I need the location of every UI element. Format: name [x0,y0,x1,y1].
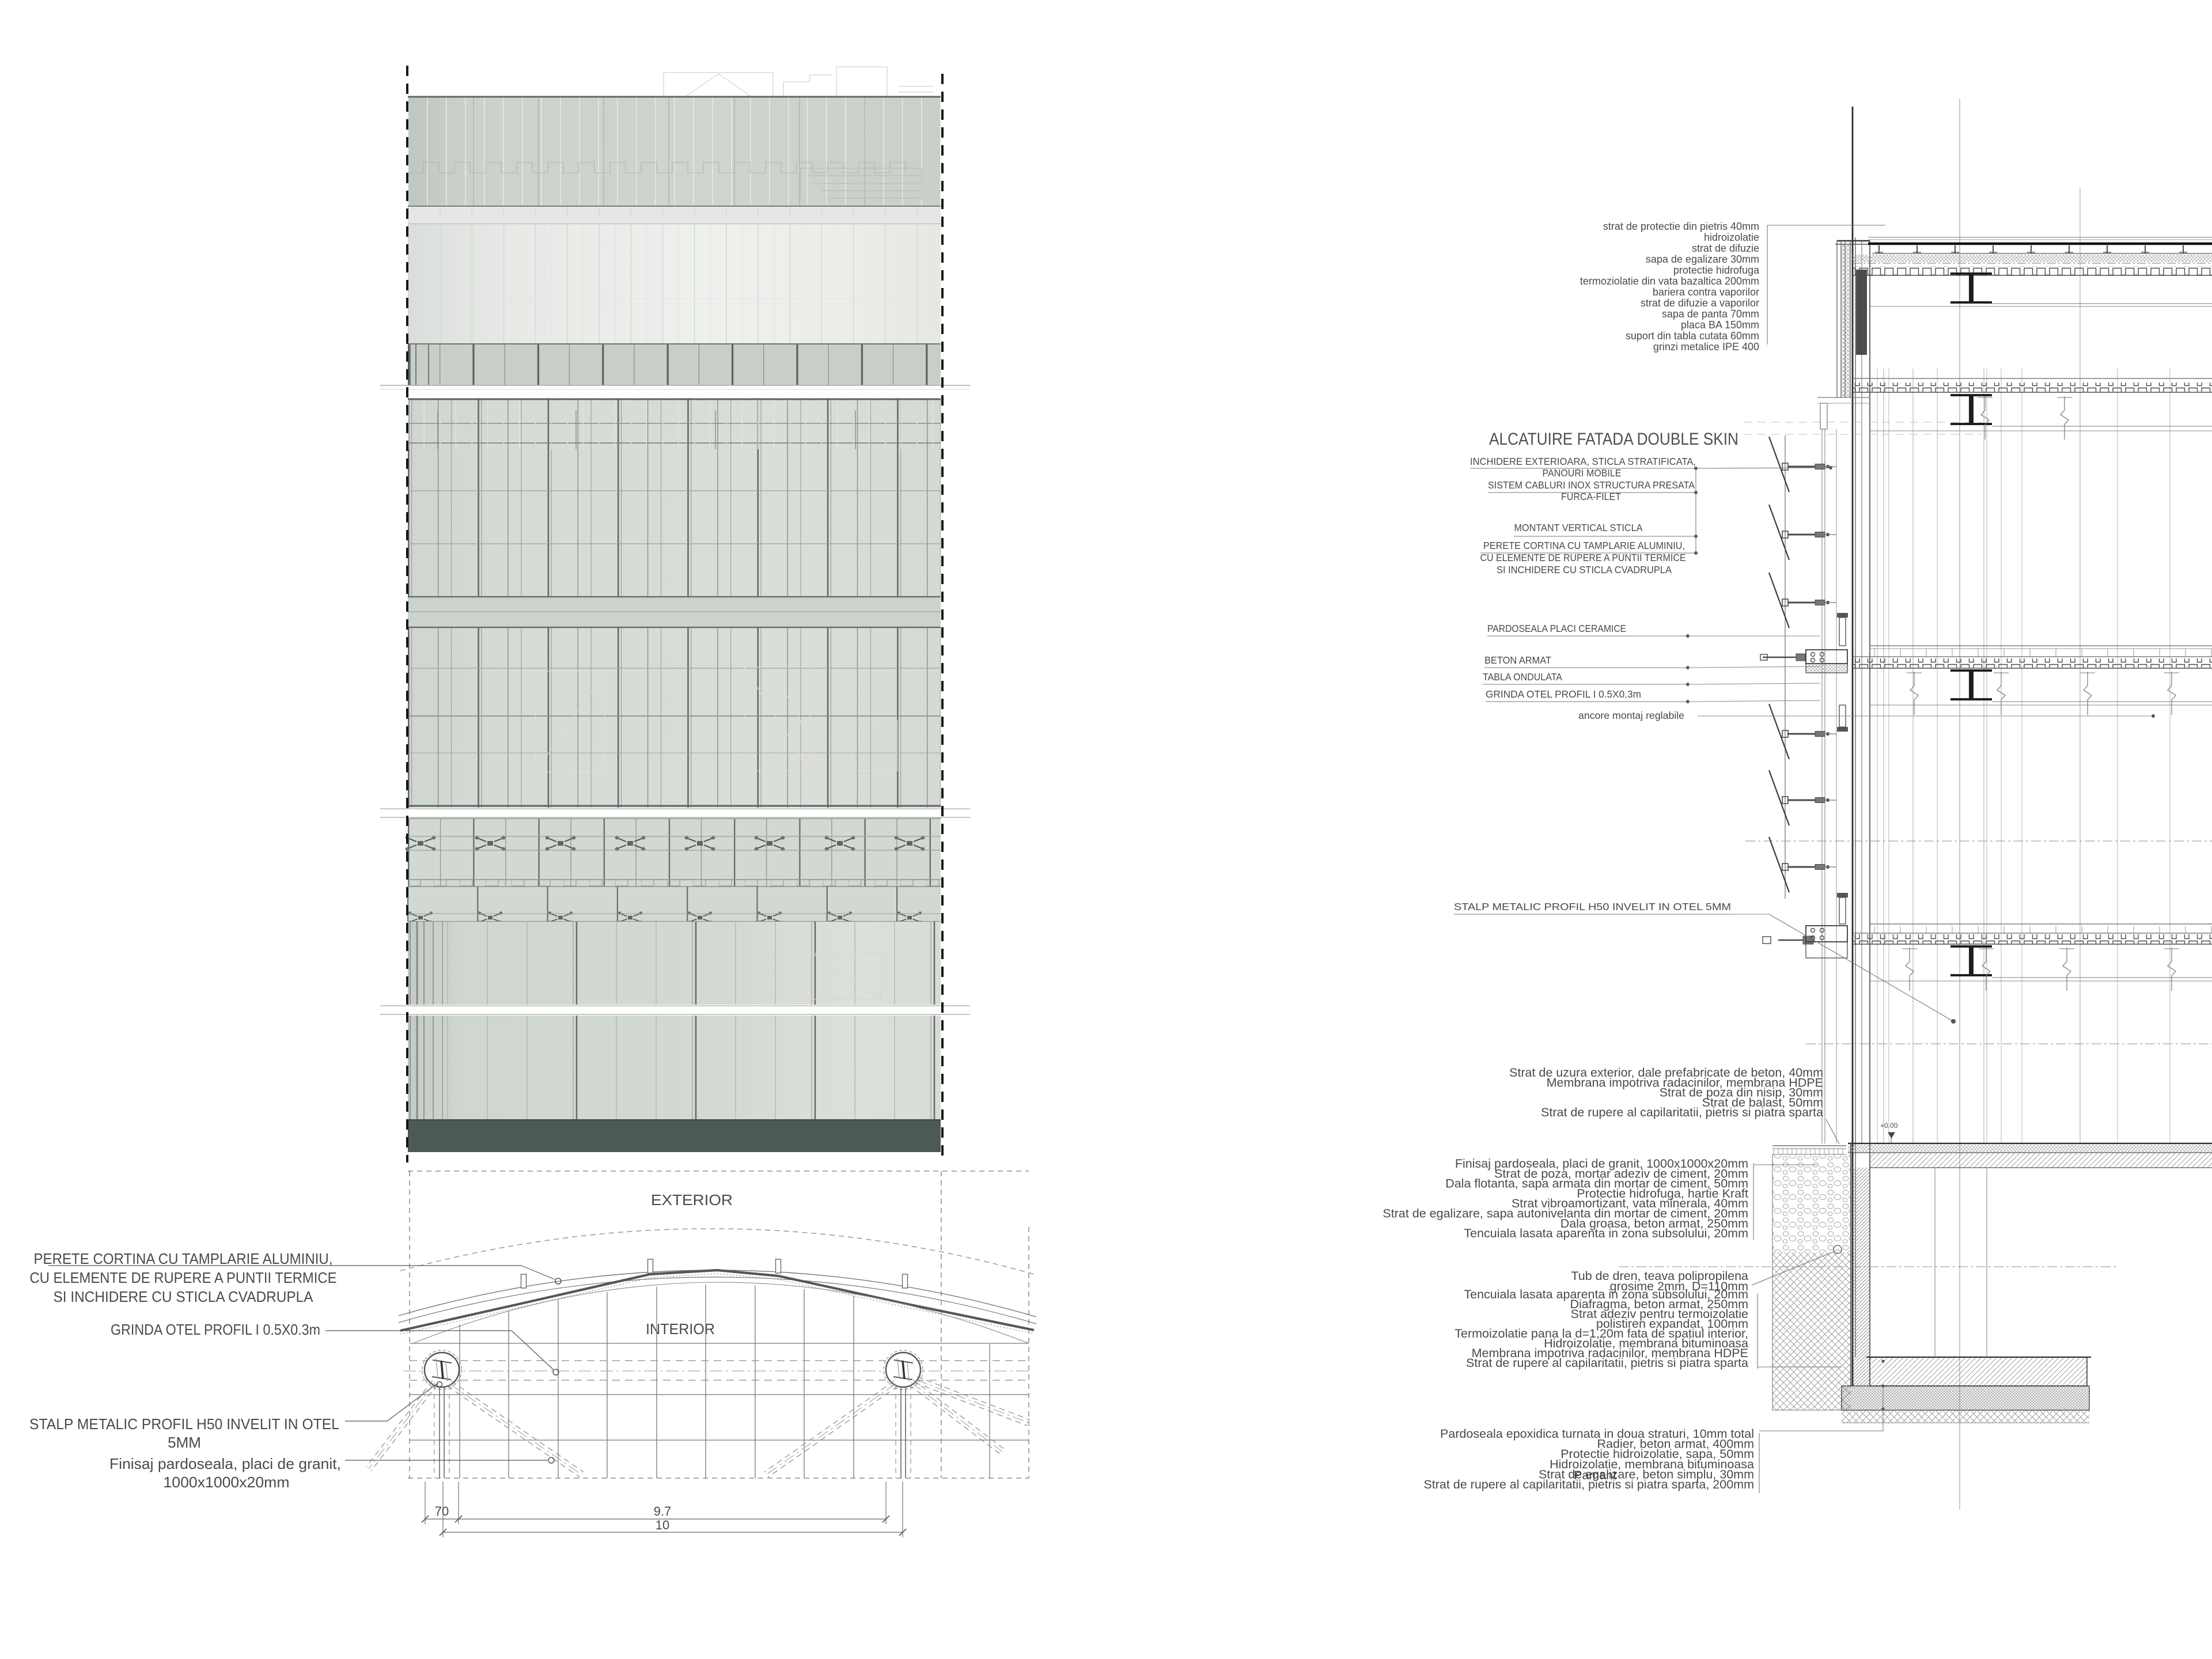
svg-text:PARDOSEALA PLACI CERAMICE: PARDOSEALA PLACI CERAMICE [1487,623,1626,634]
svg-text:ancore montaj reglabile: ancore montaj reglabile [1578,710,1684,721]
svg-text:Tencuiala lasata aparenta in z: Tencuiala lasata aparenta in zona subsol… [1464,1226,1748,1240]
svg-text:STALP METALIC PROFIL H50 INVEL: STALP METALIC PROFIL H50 INVELIT IN OTEL… [1454,901,1731,912]
svg-text:termoziolatie din vata bazalti: termoziolatie din vata bazaltica 200mm [1580,275,1759,287]
svg-text:strat de protectie din pietris: strat de protectie din pietris 40mm [1603,221,1759,232]
svg-text:strat de difuzie a vaporilor: strat de difuzie a vaporilor [1641,297,1759,309]
svg-text:bariera contra vaporilor: bariera contra vaporilor [1653,286,1759,298]
svg-text:INTERIOR: INTERIOR [646,1320,715,1338]
svg-text:PERETE CORTINA CU TAMPLARIE AL: PERETE CORTINA CU TAMPLARIE ALUMINIU, [1483,540,1685,551]
svg-text:TABLA ONDULATA: TABLA ONDULATA [1483,671,1562,683]
svg-text:SISTEM CABLURI INOX STRUCTURA: SISTEM CABLURI INOX STRUCTURA PRESATA [1488,479,1695,491]
svg-text:SI INCHIDERE CU STICLA CVADRUP: SI INCHIDERE CU STICLA CVADRUPLA [1497,564,1672,575]
svg-text:hidroizolatie: hidroizolatie [1704,232,1759,243]
svg-text:placa BA 150mm: placa BA 150mm [1681,319,1759,331]
svg-text:+0.00: +0.00 [1880,1122,1898,1130]
svg-text:10: 10 [656,1518,669,1532]
svg-text:GRINDA OTEL PROFIL I 0.5X0.3m: GRINDA OTEL PROFIL I 0.5X0.3m [111,1321,320,1338]
svg-text:Strat de rupere al capilaritat: Strat de rupere al capilaritatii, pietri… [1466,1356,1748,1370]
svg-text:SI INCHIDERE CU STICLA CVADRUP: SI INCHIDERE CU STICLA CVADRUPLA [54,1288,314,1305]
svg-text:9.7: 9.7 [654,1504,672,1518]
svg-text:MONTANT VERTICAL STICLA: MONTANT VERTICAL STICLA [1514,522,1643,533]
svg-text:EXTERIOR: EXTERIOR [651,1191,733,1209]
svg-text:INCHIDERE EXTERIOARA, STICLA S: INCHIDERE EXTERIOARA, STICLA STRATIFICAT… [1470,456,1696,467]
svg-text:Pamant: Pamant [1574,1468,1616,1482]
svg-text:GRINDA OTEL PROFIL I 0.5X0.3m: GRINDA OTEL PROFIL I 0.5X0.3m [1486,688,1641,700]
svg-text:CU ELEMENTE DE RUPERE A PUNTII: CU ELEMENTE DE RUPERE A PUNTII TERMICE [30,1269,337,1286]
svg-text:PERETE CORTINA CU TAMPLARIE AL: PERETE CORTINA CU TAMPLARIE ALUMINIU, [34,1250,333,1267]
svg-text:ALCATUIRE FATADA DOUBLE SKIN: ALCATUIRE FATADA DOUBLE SKIN [1489,430,1738,449]
svg-text:BETON ARMAT: BETON ARMAT [1484,654,1551,666]
svg-text:strat de difuzie: strat de difuzie [1692,243,1759,254]
svg-text:suport din tabla cutata 60mm: suport din tabla cutata 60mm [1626,330,1759,342]
svg-text:sapa de panta 70mm: sapa de panta 70mm [1662,308,1759,320]
svg-text:Finisaj pardoseala, placi de g: Finisaj pardoseala, placi de granit, [109,1455,341,1472]
svg-text:protectie hidrofuga: protectie hidrofuga [1673,264,1760,276]
svg-text:grinzi metalice IPE 400: grinzi metalice IPE 400 [1653,341,1759,353]
svg-text:sapa de egalizare 30mm: sapa de egalizare 30mm [1646,253,1759,265]
svg-text:CU ELEMENTE DE RUPERE A PUNTII: CU ELEMENTE DE RUPERE A PUNTII TERMICE [1480,552,1686,563]
svg-text:STALP METALIC PROFIL H50 INVEL: STALP METALIC PROFIL H50 INVELIT IN OTEL [29,1415,339,1433]
svg-text:PANOURI MOBILE: PANOURI MOBILE [1543,467,1622,479]
svg-text:5MM: 5MM [168,1434,201,1451]
svg-text:Strat de rupere al capilaritat: Strat de rupere al capilaritatii, pietri… [1541,1105,1823,1119]
svg-text:1000x1000x20mm: 1000x1000x20mm [164,1474,290,1491]
svg-text:70: 70 [435,1504,449,1518]
